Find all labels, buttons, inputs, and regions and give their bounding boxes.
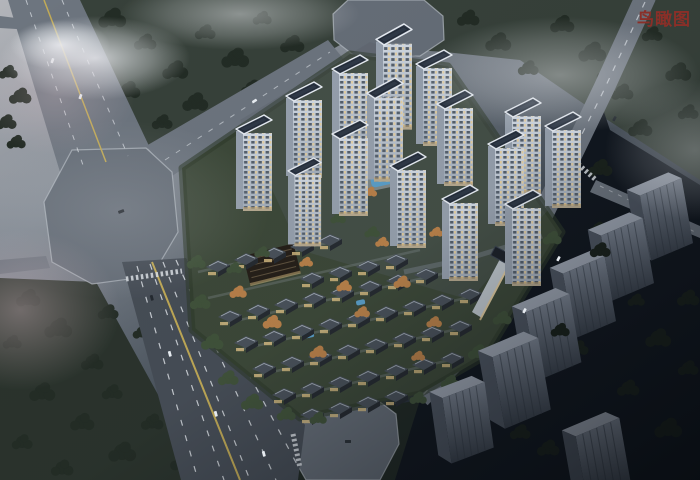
aerial-rendering: 鸟瞰图 <box>0 0 700 480</box>
caption-birdseye-view: 鸟瞰图 <box>637 9 691 29</box>
rendering-canvas: 鸟瞰图 <box>0 0 700 480</box>
